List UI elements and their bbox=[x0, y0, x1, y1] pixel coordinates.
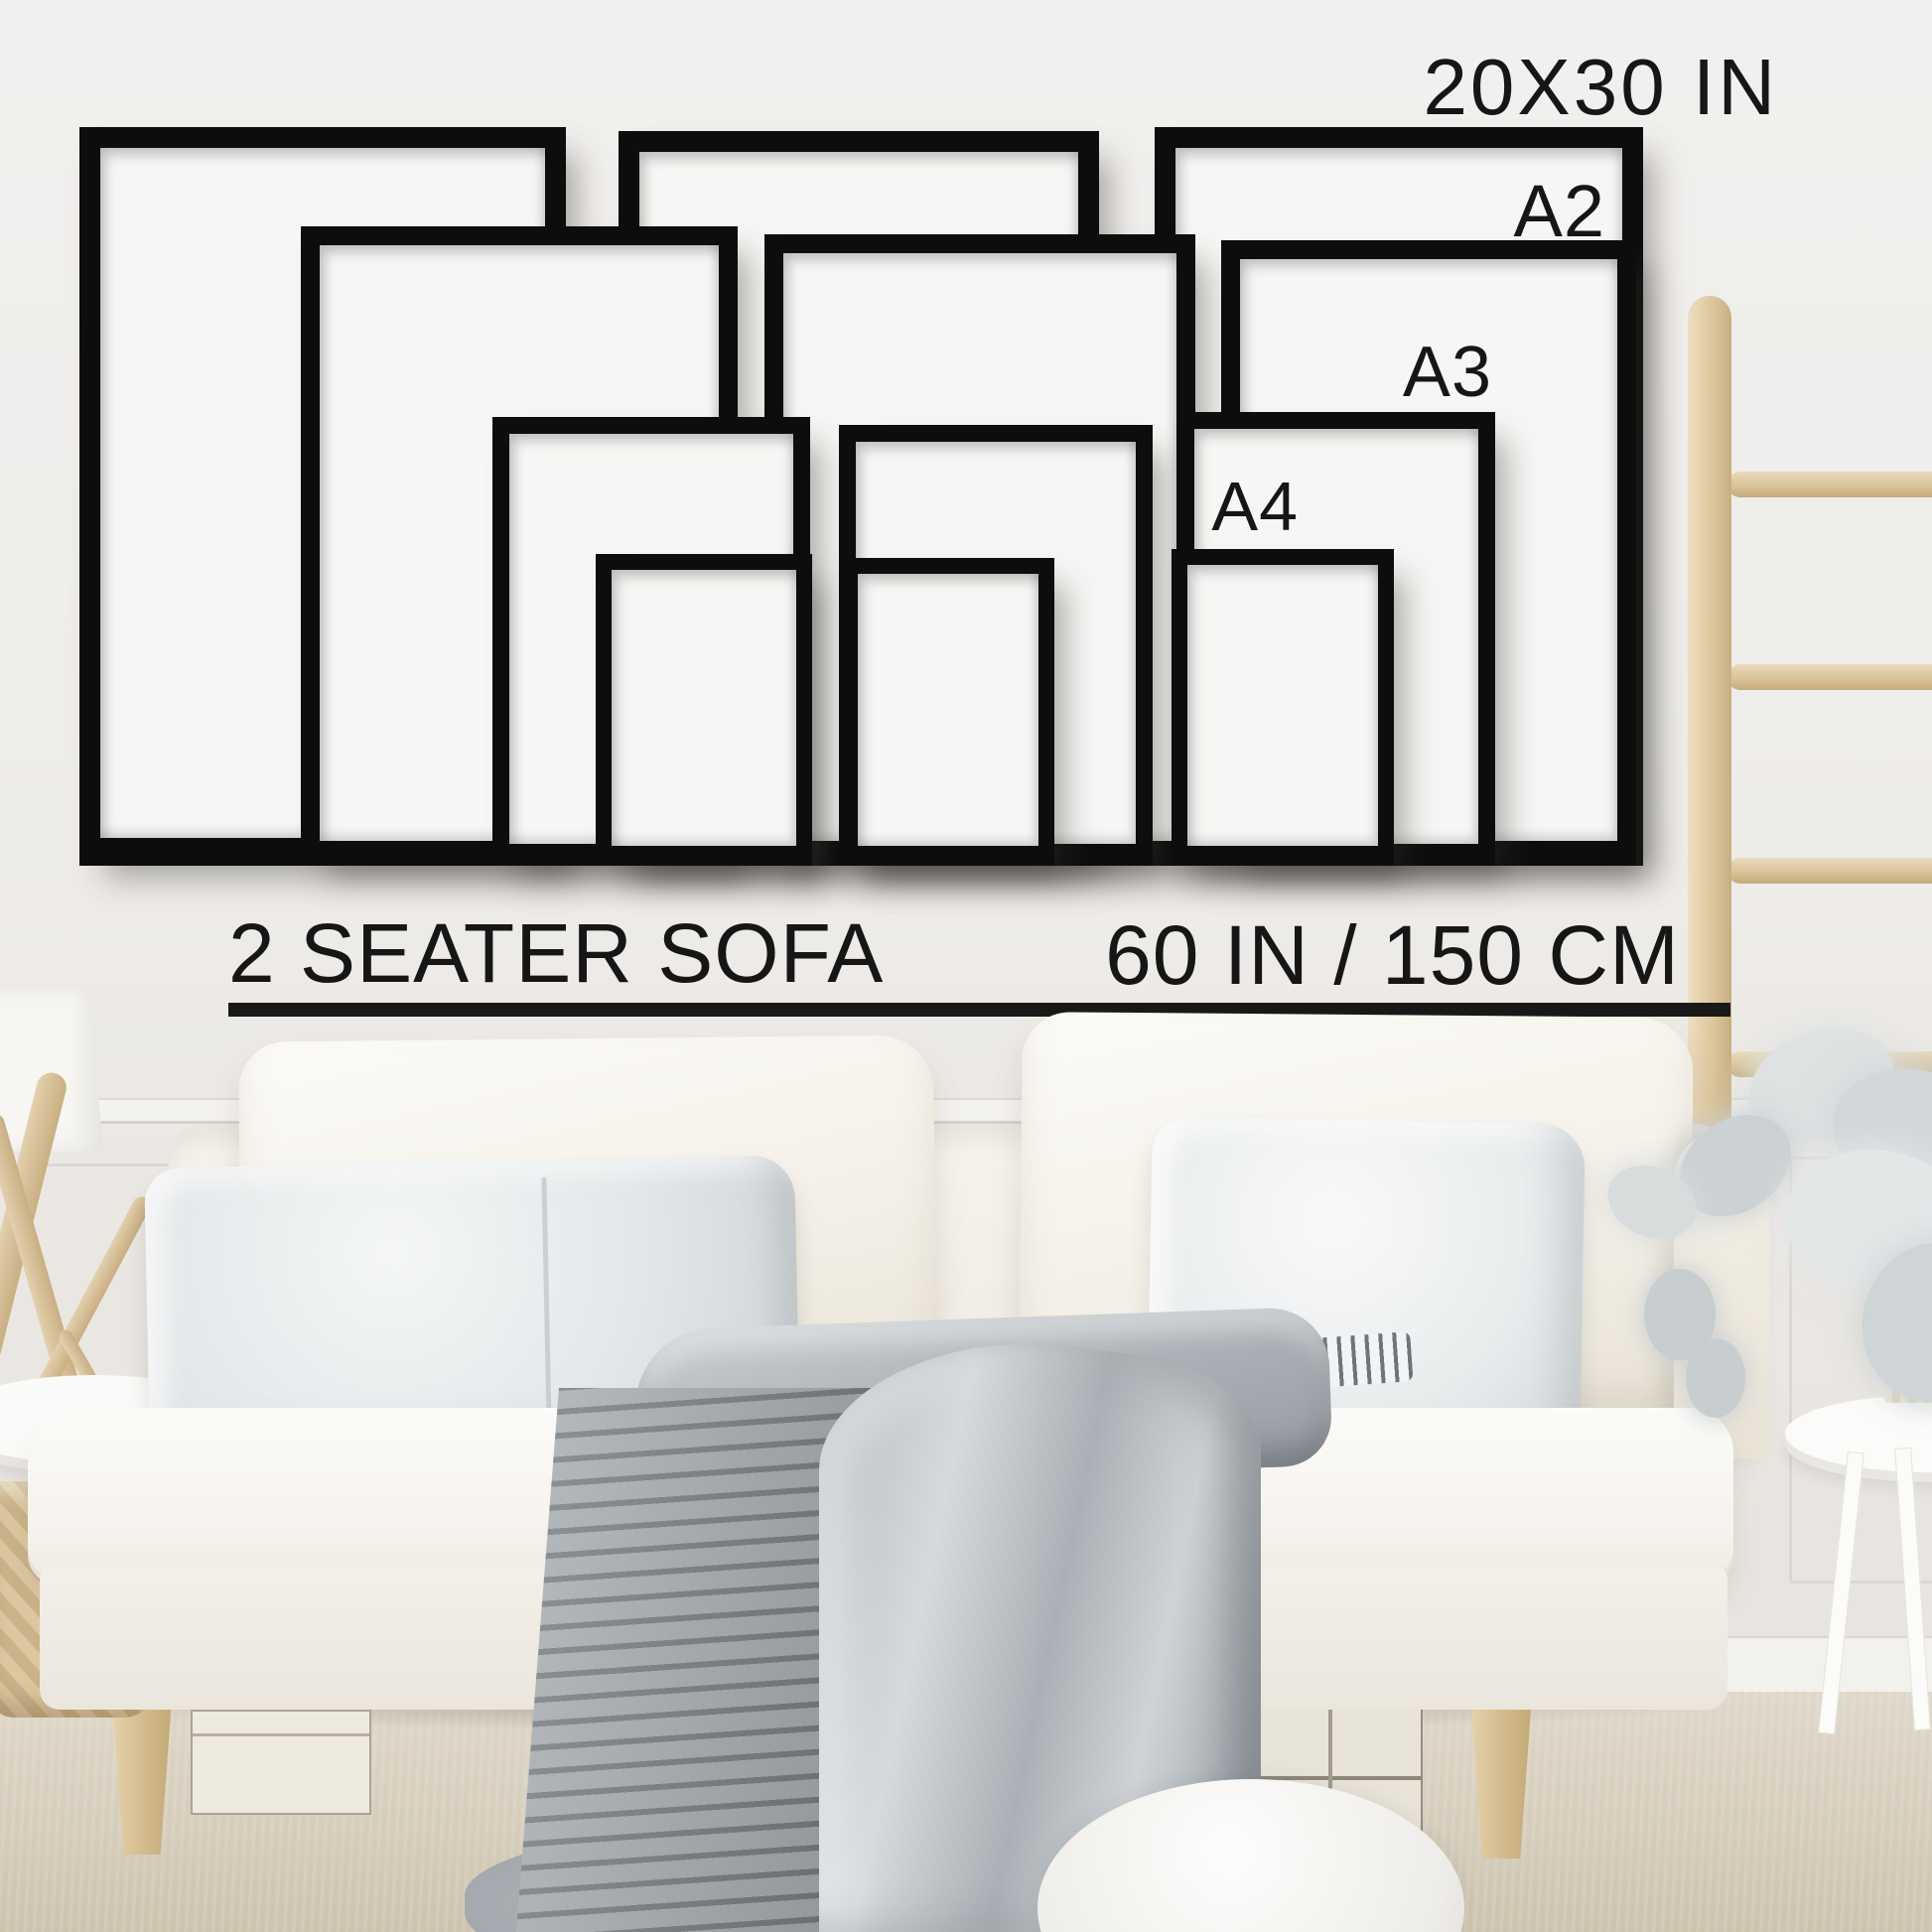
size-label-a3: A3 bbox=[1403, 332, 1492, 413]
size-label-a2: A2 bbox=[1513, 169, 1605, 253]
frame-size-guide-image: 20X30 IN A2 A3 A4 2 SEATER SOFA 60 IN / … bbox=[0, 0, 1932, 1932]
scale-underline bbox=[228, 1003, 1730, 1017]
plant-foliage bbox=[1686, 1338, 1745, 1418]
storage-box-left bbox=[191, 1710, 371, 1815]
size-label-20x30: 20X30 IN bbox=[1423, 42, 1778, 133]
ladder-rung bbox=[1727, 858, 1932, 884]
sofa-width-label: 2 SEATER SOFA bbox=[228, 905, 884, 1002]
sofa-dimension-label: 60 IN / 150 CM bbox=[1105, 907, 1680, 1004]
frame-a4-left bbox=[596, 554, 812, 866]
ladder-rung bbox=[1727, 472, 1932, 497]
size-label-a4: A4 bbox=[1211, 467, 1299, 546]
ladder-rung bbox=[1727, 664, 1932, 690]
frame-a4-right bbox=[1172, 549, 1394, 866]
frame-a4-center bbox=[842, 558, 1054, 866]
